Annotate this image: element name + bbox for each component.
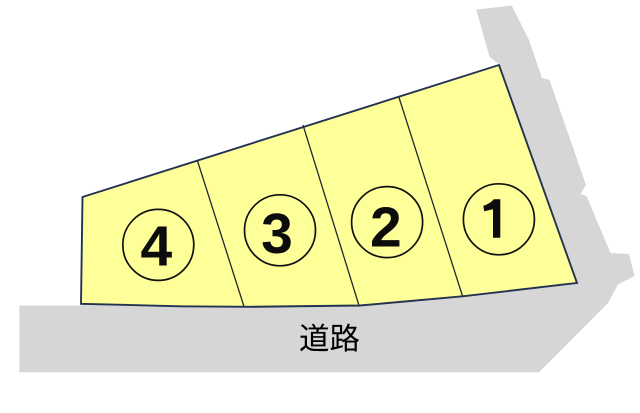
svg-text:3: 3	[261, 202, 293, 266]
svg-text:4: 4	[140, 214, 172, 278]
svg-text:2: 2	[370, 196, 402, 260]
